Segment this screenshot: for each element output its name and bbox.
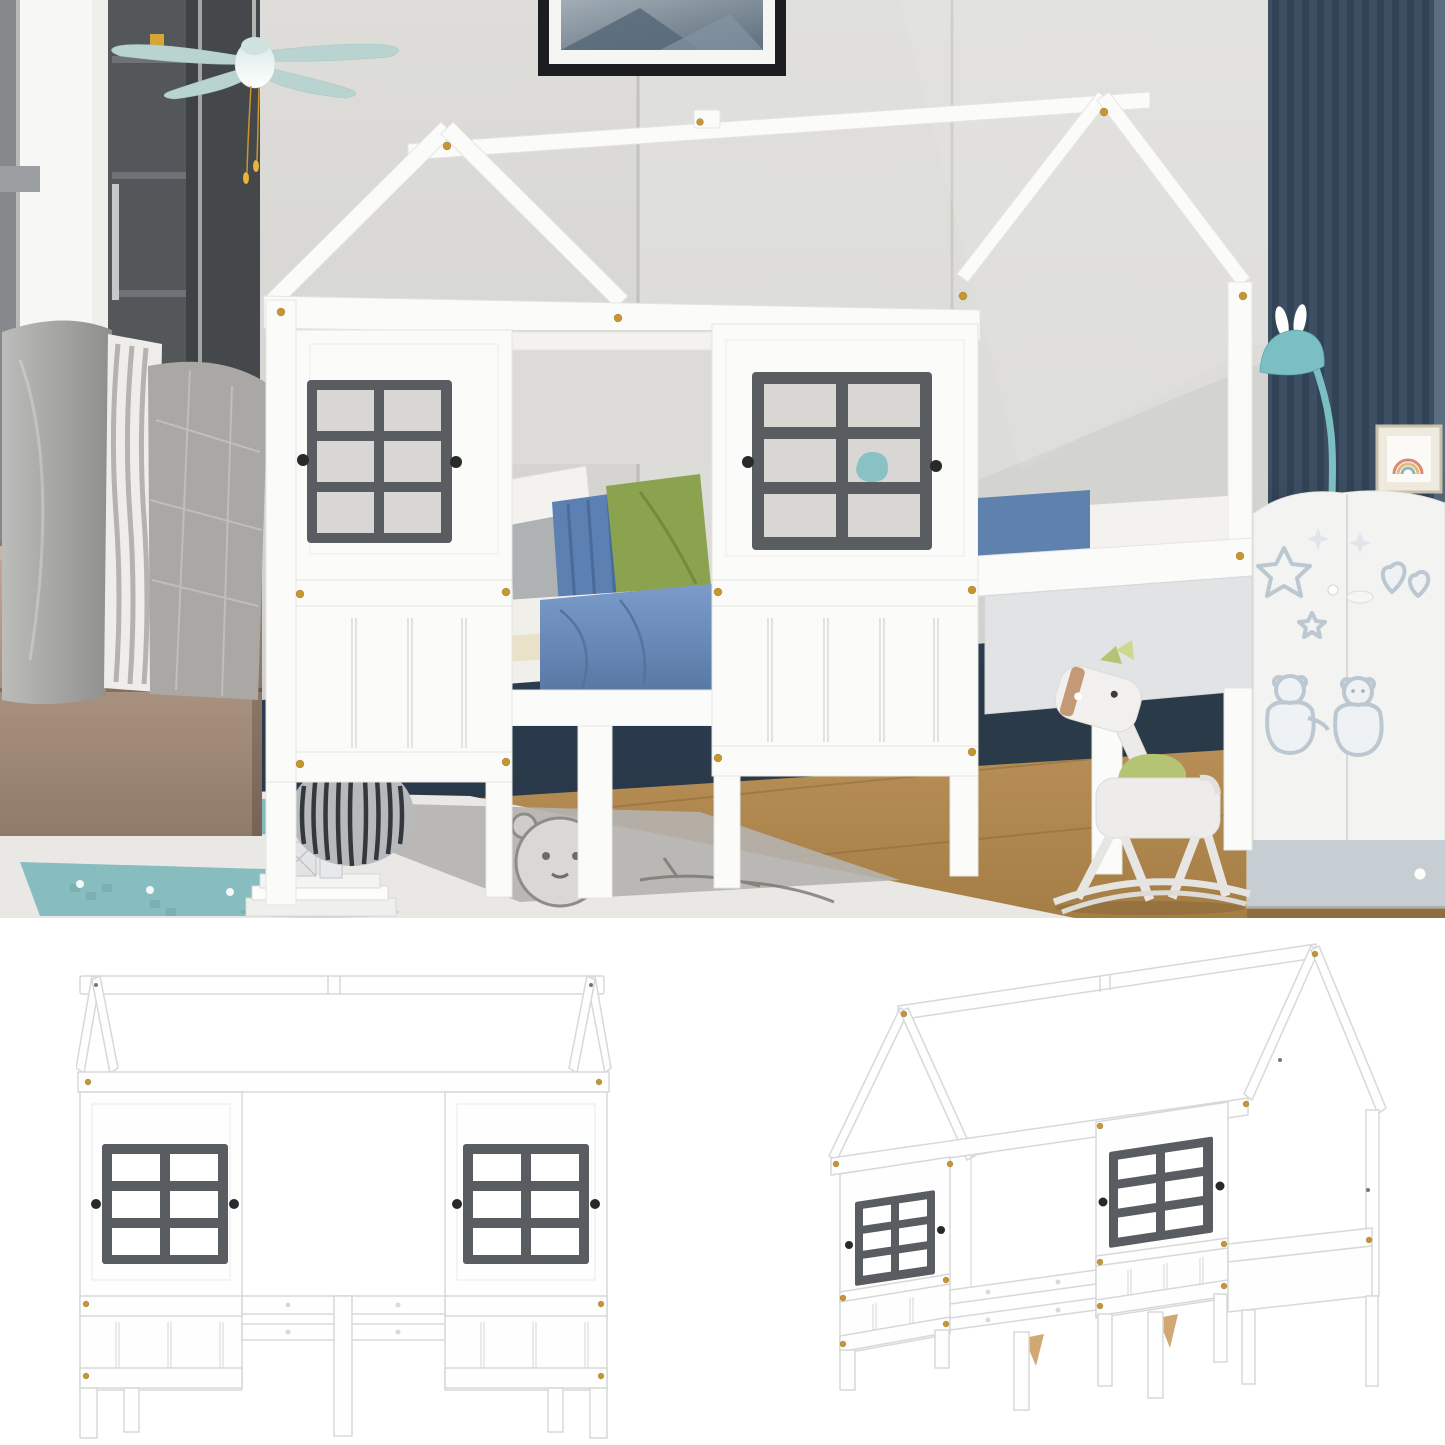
bed-leg xyxy=(1242,1310,1255,1384)
gable-beam xyxy=(829,1008,908,1160)
product-image xyxy=(0,0,1445,1445)
wardrobe xyxy=(1247,491,1445,918)
bed-leg xyxy=(486,782,512,897)
left-playhouse-window xyxy=(297,380,462,543)
window-knob xyxy=(452,1199,462,1209)
fan-pull-chain xyxy=(243,172,249,184)
inner-bed-rail xyxy=(506,690,712,726)
left-bed-panel xyxy=(840,1157,950,1390)
inner-bed-leg xyxy=(578,726,612,898)
throw-pillows xyxy=(2,320,268,704)
inner-bed-frame xyxy=(242,1296,445,1436)
bed-leg xyxy=(714,776,740,888)
perspective-view-drawing xyxy=(828,940,1392,1442)
wardrobe-bird-handle xyxy=(1347,591,1373,603)
right-bed-panel xyxy=(445,1092,607,1390)
window-knob xyxy=(845,1241,853,1249)
front-view-drawing xyxy=(76,972,613,1442)
bed-leg xyxy=(1366,1296,1378,1386)
window-knob xyxy=(91,1199,101,1209)
window-knob xyxy=(450,456,462,468)
window-knob xyxy=(742,456,754,468)
window-knob xyxy=(297,454,309,466)
picture-frame xyxy=(538,0,786,76)
left-bed-panel xyxy=(80,1092,242,1390)
eave-rail xyxy=(78,1072,609,1092)
ridge-beam xyxy=(898,944,1316,1020)
window-knob xyxy=(229,1199,239,1209)
window-knob xyxy=(1216,1182,1225,1191)
wardrobe-knob xyxy=(1328,585,1338,595)
right-playhouse-window xyxy=(742,372,942,550)
window-knob xyxy=(1099,1198,1108,1207)
bed-leg xyxy=(935,1330,949,1368)
right-playhouse-window xyxy=(1109,1136,1213,1248)
left-playhouse-window xyxy=(855,1190,935,1286)
bed-end-section xyxy=(1228,1228,1378,1386)
bedding xyxy=(506,330,712,706)
window-knob xyxy=(937,1226,945,1234)
bedroom-photo xyxy=(0,0,1445,918)
shelf-handle xyxy=(112,184,119,300)
bed-leg xyxy=(1214,1294,1227,1362)
window-knob xyxy=(930,460,942,472)
bed-leg xyxy=(1098,1314,1112,1386)
bed-leg xyxy=(840,1350,855,1390)
ridge-beam xyxy=(80,976,604,994)
bed-leg xyxy=(266,782,296,905)
center-leg xyxy=(334,1296,352,1436)
center-leg xyxy=(1014,1332,1029,1410)
bed-leg xyxy=(950,776,978,876)
center-leg xyxy=(1148,1312,1163,1398)
rainbow-frame xyxy=(1377,426,1441,492)
bed-leg xyxy=(1224,688,1252,850)
window-knob xyxy=(590,1199,600,1209)
